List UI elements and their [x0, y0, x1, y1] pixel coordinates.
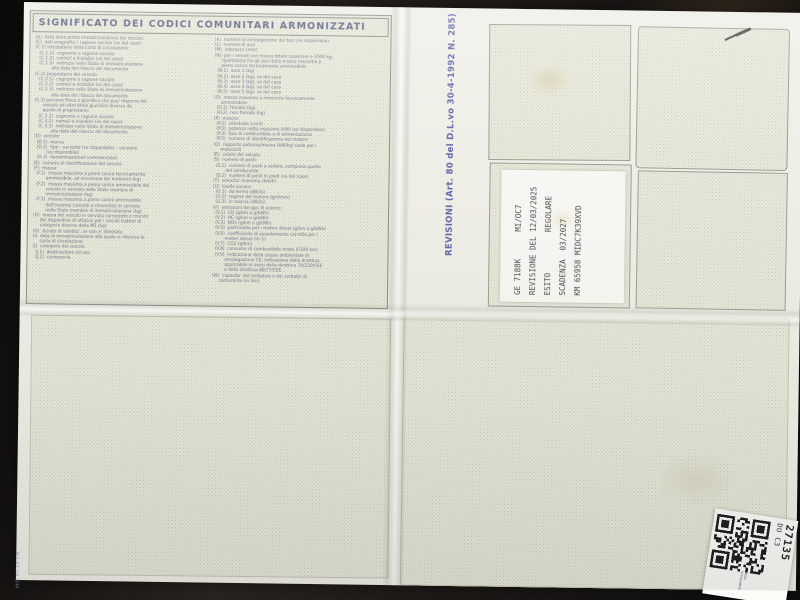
- revision-boxes-grid: GE 7188K MI/OC7REVISIONE DEL 12/03/2025E…: [484, 18, 794, 312]
- qr-code-icon: [709, 514, 771, 576]
- photo-background: SIGNIFICATO DEI CODICI COMUNITARI ARMONI…: [0, 0, 800, 600]
- revision-stamp-text: GE 7188K MI/OC7REVISIONE DEL 12/03/2025E…: [504, 166, 630, 300]
- text-line: (J.2) carrozzeria: [32, 255, 206, 263]
- edge-code: MIB 05 10 EM: [16, 540, 27, 588]
- revision-box-2: [635, 26, 790, 171]
- revision-stamp: GE 7188K MI/OC7REVISIONE DEL 12/03/2025E…: [500, 170, 626, 304]
- text-line: KM 65958 MIDC7K39XVD: [570, 167, 587, 296]
- revision-box-1: [488, 24, 631, 161]
- edge-code-wrap: MIB 05 10 EM: [16, 540, 27, 588]
- registration-document: SIGNIFICATO DEI CODICI COMUNITARI ARMONI…: [16, 2, 800, 591]
- legend-right-column: (K) numero di omologazione del tipo (se …: [211, 38, 388, 306]
- blank-panel-left: [28, 315, 391, 579]
- harmonized-codes-legend: SIGNIFICATO DEI CODICI COMUNITARI ARMONI…: [26, 10, 392, 309]
- qr-fine-print-wrap: ritirorinnovabile: [730, 570, 748, 600]
- revision-box-4: [636, 170, 788, 311]
- legend-title: SIGNIFICATO DEI CODICI COMUNITARI ARMONI…: [39, 17, 366, 33]
- qr-sticker: 27135 DU C3 ritirorinnovabile: [702, 508, 798, 600]
- legend-columns: (B) data della prima immatricolazione de…: [32, 35, 389, 306]
- legend-title-box: SIGNIFICATO DEI CODICI COMUNITARI ARMONI…: [33, 13, 389, 37]
- revisioni-section-label: REVISIONI (Art. 80 del D.L.vo 30-4-1992 …: [444, 60, 463, 256]
- qr-fine-print: ritirorinnovabile: [730, 570, 748, 600]
- revisioni-section-label-wrap: REVISIONI (Art. 80 del D.L.vo 30-4-1992 …: [444, 60, 463, 256]
- legend-left-column: (B) data della prima immatricolazione de…: [32, 35, 209, 303]
